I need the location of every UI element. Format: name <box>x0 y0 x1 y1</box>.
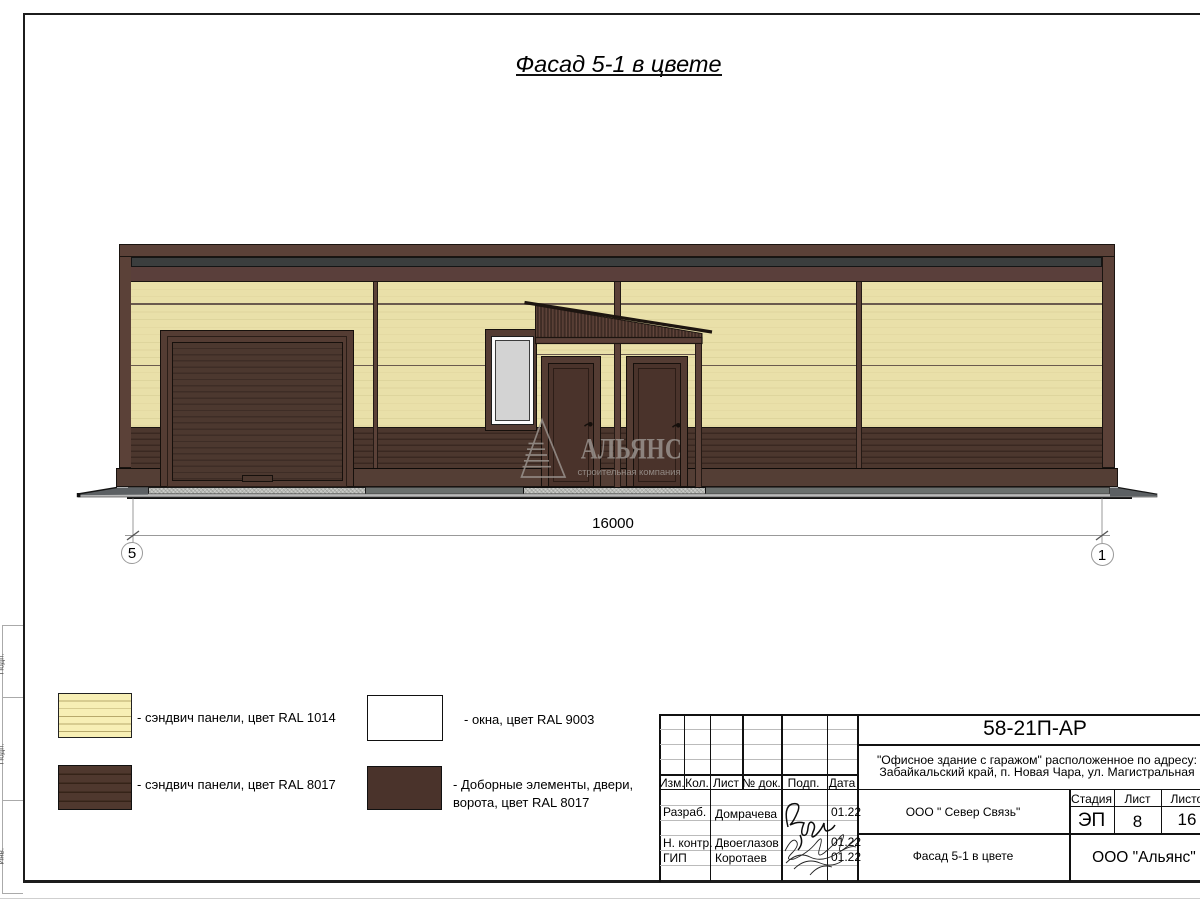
svg-text:строительная компания: строительная компания <box>578 467 681 478</box>
svg-text:АЛЬЯНС: АЛЬЯНС <box>581 432 682 465</box>
